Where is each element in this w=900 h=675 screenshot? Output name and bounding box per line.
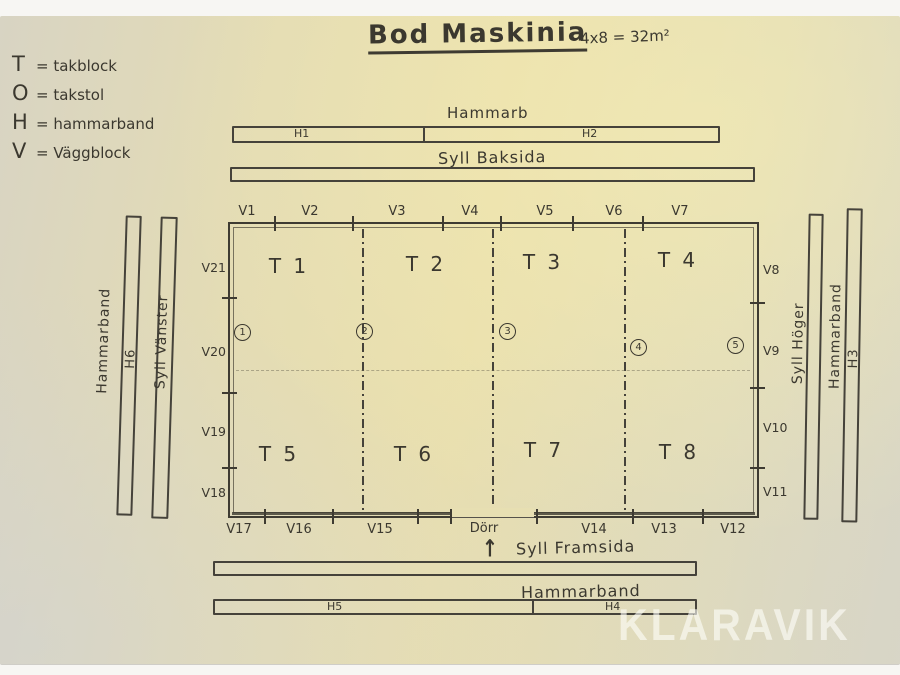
syll-hoger-label: Syll Höger [790,302,807,384]
roof-block-label: T 7 [524,438,564,462]
wall-label-v5: V5 [536,204,553,219]
legend-symbol: V [12,139,36,163]
hammarband-top-label: Hammarb [447,104,529,122]
legend-term: = hammarband [36,115,154,133]
floor-plan: T 1 T 2 T 3 T 4 T 5 T 6 T 7 T 8 1 2 3 4 … [228,222,759,518]
wall-label-v7: V7 [671,204,688,219]
door-opening [452,508,534,518]
wall-label-v4: V4 [461,204,478,219]
segment-h1-label: H1 [294,128,309,140]
roof-block-label: T 8 [659,440,699,464]
segment-h3-label: H3 [846,348,861,368]
legend-symbol: T [12,52,36,76]
wall-tick [332,509,334,524]
wall-tick [702,509,704,524]
wall-tick [750,467,765,469]
segment-h6-label: H6 [123,348,139,369]
legend-symbol: O [12,81,36,105]
segment-h2-label: H2 [582,128,597,140]
wall-tick [450,509,452,524]
syll-hoger-bar [803,214,823,520]
wall-tick [642,216,644,231]
syll-baksida-bar [230,167,755,182]
wall-label-v14: V14 [581,522,606,537]
wall-tick [274,216,276,231]
wall-label-v19: V19 [196,424,226,439]
roof-block-label: T 4 [658,248,698,272]
door-arrow-icon: ↑ [482,535,498,563]
legend-term: = Väggblock [36,144,130,162]
wall-tick [750,302,765,304]
wall-label-v6: V6 [605,204,622,219]
wall-tick [417,509,419,524]
wall-label-v9: V9 [763,343,780,358]
wall-label-v11: V11 [763,484,787,499]
wall-tick [222,297,237,299]
truss-number-badge: 5 [727,337,744,354]
wall-label-v2: V2 [301,204,318,219]
wall-label-v10: V10 [763,420,787,435]
wall-label-v15: V15 [367,522,392,537]
legend-item-takstol: O= takstol [12,81,104,109]
truss-number-badge: 1 [234,324,251,341]
hammarband-left-label: Hammarband [94,288,113,394]
syll-vanster-label: Syll Vänster [152,294,171,389]
wall-tick [536,509,538,524]
wall-label-v21: V21 [196,260,226,275]
legend-item-vaggblock: V= Väggblock [12,139,130,167]
wall-tick [632,509,634,524]
wall-label-v3: V3 [388,204,405,219]
roof-block-label: T 5 [259,442,299,466]
wall-label-v18: V18 [196,485,226,500]
right-assembly: Syll Höger Hammarband H3 [787,207,873,526]
truss-number-badge: 4 [630,339,647,356]
roof-block-label: T 3 [523,250,563,274]
syll-baksida-label: Syll Baksida [438,147,547,168]
roof-block-label: T 6 [394,442,434,466]
roof-centerline [236,370,750,371]
truss-number-badge: 3 [499,323,516,340]
wall-label-v1: V1 [238,204,255,219]
legend-term: = takblock [36,57,117,75]
roof-block-label: T 1 [269,254,309,278]
drawing-title: Bod Maskinia [368,17,588,54]
wall-tick [750,387,765,389]
bar-divider [532,601,534,613]
hammarband-right-label: Hammarband [827,283,845,389]
wall-tick [352,216,354,231]
drawing-dimensions: 4x8 = 32m² [580,26,670,47]
wall-label-v16: V16 [286,522,311,537]
legend-item-hammarband: H= hammarband [12,110,154,138]
roof-block-label: T 2 [406,252,446,276]
hammarband-top-bar: H1 H2 [232,126,720,143]
wall-tick [222,392,237,394]
wall-tick [442,216,444,231]
wall-label-v17: V17 [226,522,251,537]
legend-symbol: H [12,110,36,134]
wall-label-v20: V20 [196,344,226,359]
wall-label-v12: V12 [720,522,745,537]
wall-label-v13: V13 [651,522,676,537]
wall-tick [500,216,502,231]
wall-tick [264,509,266,524]
wall-tick [572,216,574,231]
photo-of-drawing: Bod Maskinia 4x8 = 32m² T= takblock O= t… [0,0,900,675]
door-label: Dörr [470,521,498,536]
bar-divider [423,128,425,141]
klaravik-watermark: KLARAVIK [618,600,851,651]
syll-framsida-label: Syll Framsida [516,536,636,558]
syll-framsida-bar [213,561,697,576]
segment-h5-label: H5 [327,601,342,613]
legend-item-takblock: T= takblock [12,52,117,80]
wall-tick [222,467,237,469]
left-assembly: Hammarband H6 Syll Vänster [90,213,192,522]
truss-number-badge: 2 [356,323,373,340]
wall-label-v8: V8 [763,262,780,277]
legend-term: = takstol [36,86,104,104]
